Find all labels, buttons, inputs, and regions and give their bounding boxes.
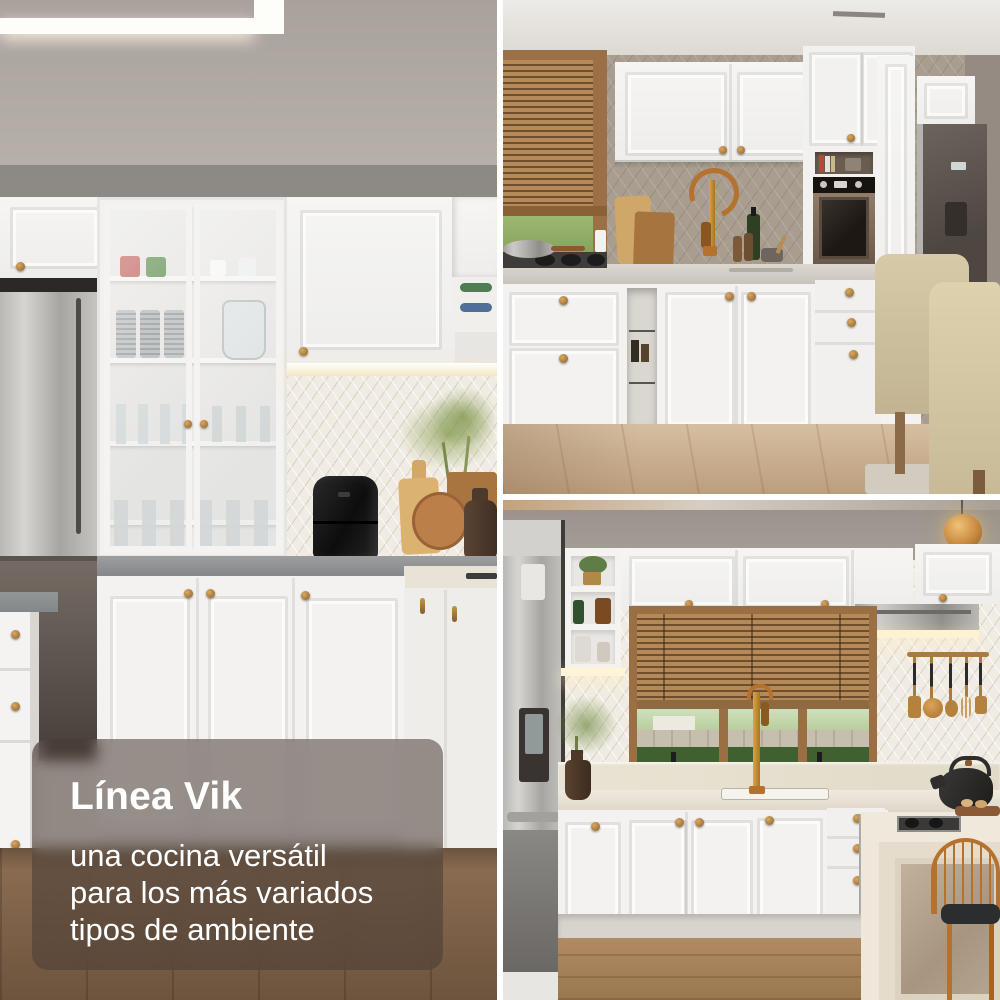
wine-bottle bbox=[460, 283, 492, 292]
cabinet-knob bbox=[675, 818, 684, 827]
frying-pan bbox=[503, 240, 555, 258]
air-fryer-display bbox=[338, 492, 350, 497]
caption-title: Línea Vik bbox=[70, 775, 417, 819]
sink-rim bbox=[729, 268, 793, 272]
cabinet-knob bbox=[184, 589, 193, 598]
stool-leg bbox=[989, 924, 994, 1000]
kettle-lid-knob bbox=[965, 760, 972, 766]
drawer-knob bbox=[847, 318, 856, 327]
cabinet-handle bbox=[452, 606, 457, 622]
door-panel bbox=[809, 52, 863, 146]
blind-cord bbox=[839, 614, 841, 706]
glass-door-right bbox=[194, 204, 282, 552]
oven-glass-door bbox=[819, 197, 869, 259]
drawer-gap bbox=[815, 310, 881, 313]
window-mullion bbox=[719, 709, 728, 768]
fridge-water-dispenser bbox=[945, 202, 967, 236]
kitchen-collage: Línea Vik una cocina versátil para los m… bbox=[0, 0, 1000, 1000]
door-panel bbox=[665, 292, 735, 428]
drawer-gap bbox=[0, 668, 30, 671]
grater-head bbox=[975, 696, 987, 714]
under-cabinet-light bbox=[287, 363, 497, 376]
cabinet-knob bbox=[939, 594, 947, 602]
fridge-handle bbox=[76, 298, 81, 534]
window-rail bbox=[503, 206, 607, 216]
hanging-utensil bbox=[949, 657, 952, 701]
fridge-top-panel bbox=[503, 520, 565, 556]
wall-strip bbox=[0, 165, 497, 198]
cabinet-knob bbox=[719, 146, 727, 154]
amber-bottle bbox=[595, 598, 611, 624]
door-panel bbox=[625, 72, 727, 156]
ceramic-vase bbox=[464, 500, 497, 560]
cabinet-knob bbox=[847, 134, 855, 142]
drawer-knob bbox=[11, 702, 20, 711]
under-shelf-light bbox=[561, 668, 625, 676]
corner-shelf-unit bbox=[452, 197, 497, 277]
cabinet-knob bbox=[725, 292, 734, 301]
cabinet-knob bbox=[747, 292, 756, 301]
bottle bbox=[631, 340, 639, 362]
air-fryer bbox=[313, 476, 378, 558]
oven-knob bbox=[855, 181, 862, 188]
spatula-head bbox=[908, 696, 921, 718]
air-fryer-basket-line bbox=[313, 521, 378, 524]
cabinet-knob bbox=[301, 591, 310, 600]
dispenser-recess bbox=[525, 714, 543, 754]
book bbox=[831, 156, 835, 172]
drawer-knob bbox=[559, 354, 568, 363]
sink bbox=[721, 788, 829, 800]
burner bbox=[929, 818, 943, 828]
floor-shadow bbox=[503, 424, 643, 494]
door-panel bbox=[924, 83, 968, 119]
door-gap bbox=[851, 550, 854, 608]
burner-grate bbox=[587, 254, 605, 266]
drawer-knob bbox=[559, 296, 568, 305]
fridge-top-gap bbox=[0, 278, 97, 292]
freezer-handle bbox=[507, 812, 561, 822]
drawer-knob bbox=[849, 350, 858, 359]
light-switch bbox=[595, 230, 606, 252]
drawer-gap bbox=[815, 342, 881, 345]
upper-cabinet-right bbox=[915, 544, 1000, 604]
drawer-stack bbox=[815, 280, 881, 426]
hood-vent-line bbox=[863, 610, 971, 614]
island-countertop bbox=[0, 592, 58, 612]
oven-display bbox=[834, 181, 847, 188]
glass-jar bbox=[575, 636, 591, 662]
island-waterfall-edge bbox=[861, 842, 879, 1000]
door-panel bbox=[741, 292, 811, 428]
door-panel bbox=[300, 210, 442, 350]
ceramic-vase bbox=[565, 760, 591, 800]
cabinet-knob bbox=[591, 822, 600, 831]
plant-foliage bbox=[555, 696, 617, 754]
sink-slot bbox=[466, 573, 497, 579]
gold-pot bbox=[583, 572, 601, 585]
photo-top-right-kitchen bbox=[503, 0, 1000, 494]
wire-rack bbox=[629, 382, 655, 384]
round-cutting-board bbox=[412, 492, 468, 550]
cabinet-knob bbox=[16, 262, 25, 271]
glass-door-left bbox=[104, 204, 192, 552]
faucet-sprayer bbox=[701, 222, 711, 248]
pepper-mill bbox=[733, 236, 742, 262]
hanging-utensil bbox=[913, 657, 916, 697]
cabinet-handle bbox=[420, 598, 425, 614]
faucet-base bbox=[703, 246, 717, 256]
chair-leg bbox=[895, 412, 905, 474]
upper-cabinet-over-fridge bbox=[917, 76, 975, 126]
chair-leg bbox=[973, 470, 985, 494]
cabinet-knob bbox=[184, 420, 192, 428]
cabinet-knob bbox=[695, 818, 704, 827]
door-panel bbox=[565, 822, 621, 928]
wood-floor bbox=[558, 938, 898, 1000]
freezer-drawer bbox=[503, 830, 565, 972]
caption-line: una cocina versátil bbox=[70, 837, 417, 874]
whisk-head bbox=[961, 696, 971, 718]
door-gap bbox=[729, 64, 732, 160]
door-gap bbox=[735, 286, 738, 428]
cutting-board bbox=[633, 211, 675, 268]
oven-knob bbox=[820, 181, 827, 188]
stool-wire-back bbox=[931, 838, 1000, 914]
faucet-spout bbox=[747, 684, 773, 700]
door-panel bbox=[923, 552, 992, 596]
pan-handle bbox=[551, 246, 585, 251]
drawer-gap bbox=[0, 740, 30, 743]
door-panel bbox=[629, 556, 735, 608]
fridge-display bbox=[951, 162, 966, 170]
hanging-utensil bbox=[979, 657, 982, 697]
cabinet-knob bbox=[765, 816, 774, 825]
glass-jar bbox=[597, 642, 610, 662]
stool-seat bbox=[941, 904, 1000, 924]
caption-card: Línea Vik una cocina versátil para los m… bbox=[32, 739, 443, 970]
ladle-head bbox=[945, 700, 958, 717]
jar bbox=[845, 158, 861, 171]
cabinet-knob bbox=[737, 146, 745, 154]
door-panel bbox=[10, 207, 100, 269]
door-gap bbox=[444, 590, 447, 852]
dining-chair-front bbox=[929, 282, 1000, 494]
caption-line: tipos de ambiente bbox=[70, 911, 417, 948]
cabinet-knob bbox=[206, 589, 215, 598]
bottle-cap bbox=[751, 207, 756, 216]
ceiling-cove-corner bbox=[254, 0, 284, 34]
fridge-control-panel bbox=[521, 564, 545, 600]
door-gap bbox=[735, 550, 738, 608]
scone bbox=[961, 799, 973, 807]
book bbox=[825, 156, 830, 172]
window-blinds bbox=[503, 60, 593, 210]
caption-line: para los más variados bbox=[70, 874, 417, 911]
photo-bottom-right-kitchen bbox=[503, 500, 1000, 1000]
fridge bbox=[0, 292, 97, 560]
plant-foliage bbox=[428, 386, 497, 448]
copper-skimmer bbox=[923, 698, 943, 718]
faucet-pipe bbox=[753, 692, 760, 792]
toekick bbox=[558, 914, 888, 940]
ceiling-cove-light bbox=[0, 18, 254, 34]
cabinet-knob bbox=[200, 420, 208, 428]
upper-cabinet-right bbox=[287, 197, 455, 363]
hanging-utensil bbox=[930, 657, 933, 699]
hanging-utensil bbox=[965, 657, 968, 697]
burner bbox=[905, 818, 919, 828]
green-bottle bbox=[573, 600, 584, 624]
window-mullion bbox=[798, 709, 807, 768]
door-panel bbox=[743, 556, 849, 608]
stool-leg bbox=[947, 924, 952, 1000]
faucet-sprayer bbox=[761, 702, 769, 726]
scone bbox=[975, 800, 987, 808]
book bbox=[819, 155, 824, 172]
burner-grate bbox=[561, 254, 581, 266]
wine-bottle bbox=[460, 303, 492, 312]
utensil-rail bbox=[907, 652, 989, 657]
pepper-mill bbox=[744, 233, 753, 261]
cabinet-knob bbox=[299, 347, 308, 356]
blind-cord bbox=[663, 614, 665, 706]
drawer-knob bbox=[845, 288, 854, 297]
wire-rack bbox=[629, 330, 655, 332]
bottle bbox=[641, 344, 649, 362]
drawer-knob bbox=[11, 630, 20, 639]
faucet-base bbox=[749, 786, 765, 794]
